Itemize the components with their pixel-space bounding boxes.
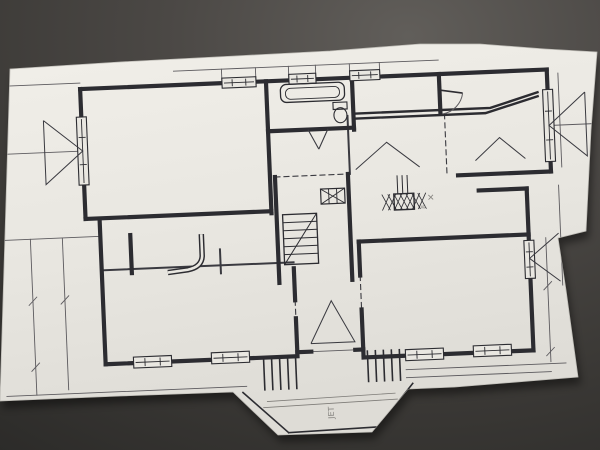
wall-line <box>296 318 297 352</box>
hatch-line <box>329 189 330 204</box>
photo-of-floor-plan-on-dark-table: JET✕8 <box>0 0 600 450</box>
wall-line <box>352 78 354 130</box>
partition-wall <box>220 249 221 273</box>
handwritten-annotation: JET <box>327 406 337 420</box>
wall-line <box>359 242 360 276</box>
wall-line <box>294 268 295 300</box>
wall-line <box>297 352 311 353</box>
floor-plan-svg: JET✕8 <box>0 0 600 450</box>
wall-line <box>130 235 132 273</box>
handwritten-annotation: 8 <box>420 205 427 209</box>
handwritten-annotation: ✕ <box>427 193 435 203</box>
wall-line <box>439 74 441 112</box>
hatch-line <box>337 188 338 203</box>
wall-line <box>479 188 527 190</box>
